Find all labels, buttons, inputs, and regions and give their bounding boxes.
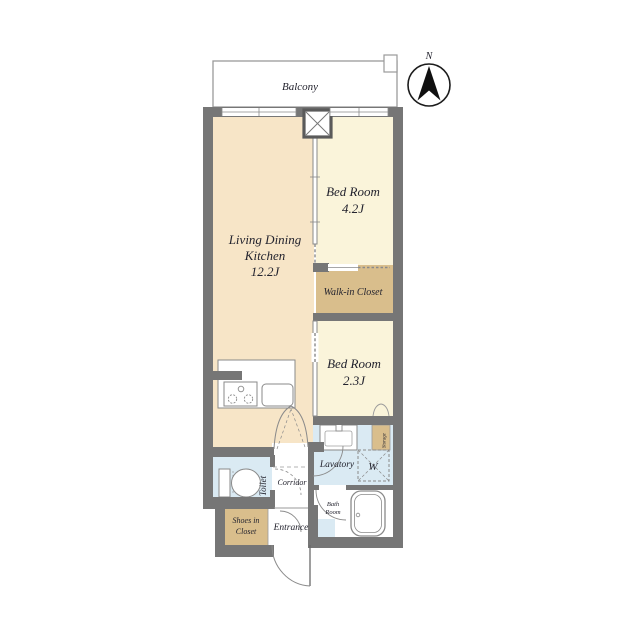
ldk-label-line1: Living Dining <box>228 232 302 247</box>
wall-bath-top-left <box>313 485 319 490</box>
floor-plan-drawing: Balcony N <box>0 0 640 640</box>
bathtub-icon <box>351 491 385 536</box>
balcony-partition-panel <box>384 55 397 72</box>
window-bedroom1 <box>330 108 388 116</box>
partition-ldk-bedroom2 <box>312 321 319 416</box>
bedroom1-size-label: 4.2J <box>342 201 365 216</box>
window-ldk <box>222 108 296 116</box>
wall-wic-bottom <box>313 313 403 321</box>
entrance-label: Entrance <box>273 523 309 533</box>
wall-wic-top-left <box>313 263 329 272</box>
toilet-label: Toilet <box>258 475 268 496</box>
wall-right <box>393 107 403 548</box>
corridor-label: Corridor <box>278 478 308 487</box>
ldk-label-line2: Kitchen <box>244 248 285 263</box>
washer-label: W <box>368 461 378 473</box>
washbasin-icon <box>320 423 357 450</box>
wall-bedroom2-bottom <box>313 416 393 425</box>
shoes-closet-label-line2: Closet <box>236 527 257 536</box>
wall-corridor-corner <box>308 442 324 452</box>
toilet-fixture-icon <box>219 469 261 497</box>
lavatory-label: Lavatory <box>319 460 355 470</box>
wall-bath-top-right <box>346 485 393 490</box>
wall-toilet-corridor-b <box>270 490 275 499</box>
bath-room-entry-floor <box>318 519 335 537</box>
pillar <box>304 110 331 137</box>
storage-label: Storage <box>383 432 388 448</box>
walk-in-closet-label: Walk-in Closet <box>324 287 383 298</box>
wall-below-toilet <box>203 497 275 509</box>
balcony-label: Balcony <box>282 81 318 93</box>
ldk-size-label: 12.2J <box>251 264 281 279</box>
north-compass-icon: N <box>408 51 450 106</box>
wall-kitchen-stub <box>213 371 242 380</box>
shoes-closet-label-line1: Shoes in <box>233 516 260 525</box>
floor-plan-page: Balcony N <box>0 0 640 640</box>
north-label: N <box>425 51 434 62</box>
door-entrance-main <box>272 545 310 586</box>
wall-bottom-right <box>308 537 403 548</box>
stove-icon <box>224 382 257 406</box>
wall-bottom-left <box>215 545 274 557</box>
wall-toilet-top <box>203 447 274 457</box>
kitchen-counter <box>218 360 295 408</box>
bedroom1-label: Bed Room <box>326 184 380 199</box>
kitchen-sink-icon <box>262 384 293 406</box>
bath-room-label-line1: Bath <box>327 501 339 508</box>
wall-corridor-right <box>308 452 314 505</box>
bedroom2-label: Bed Room <box>327 356 381 371</box>
bath-room-label-line2: Room <box>324 509 340 516</box>
wall-entrance-bath <box>308 505 318 545</box>
bedroom2-size-label: 2.3J <box>343 373 366 388</box>
wall-toilet-corridor-a <box>270 455 275 467</box>
